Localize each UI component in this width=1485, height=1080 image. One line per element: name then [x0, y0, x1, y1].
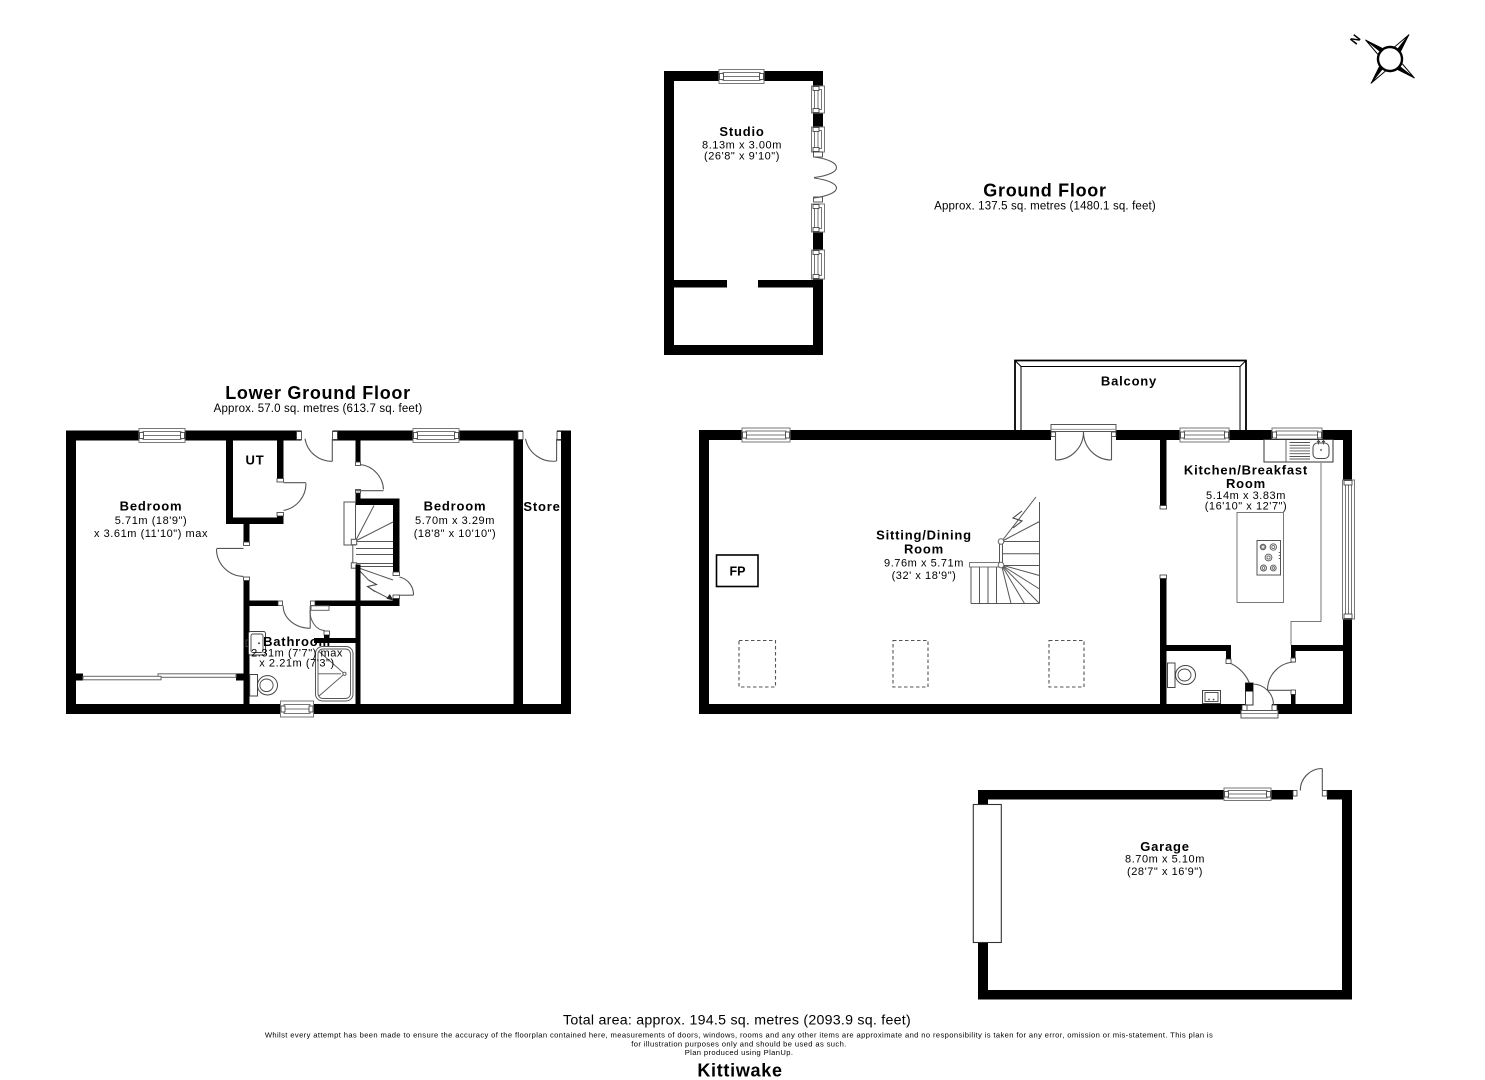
svg-text:(16'10" x 12'7"): (16'10" x 12'7") — [1205, 501, 1288, 513]
svg-text:Lower Ground Floor: Lower Ground Floor — [225, 383, 411, 403]
svg-text:Total area: approx. 194.5 sq.: Total area: approx. 194.5 sq. metres (20… — [563, 1013, 911, 1029]
svg-text:Sitting/Dining: Sitting/Dining — [876, 528, 972, 543]
svg-text:5.70m x 3.29m: 5.70m x 3.29m — [415, 515, 495, 527]
svg-text:Balcony: Balcony — [1101, 374, 1157, 389]
svg-text:UT: UT — [246, 453, 265, 468]
svg-text:Bedroom: Bedroom — [120, 499, 183, 514]
svg-text:Plan produced using PlanUp.: Plan produced using PlanUp. — [685, 1048, 794, 1057]
svg-text:Whilst every attempt has been: Whilst every attempt has been made to en… — [265, 1031, 1213, 1040]
svg-text:Approx. 137.5 sq. metres (1480: Approx. 137.5 sq. metres (1480.1 sq. fee… — [934, 201, 1156, 213]
svg-text:Bedroom: Bedroom — [424, 499, 487, 514]
svg-text:x 2.21m (7'3"): x 2.21m (7'3") — [259, 658, 334, 670]
svg-text:(32' x 18'9"): (32' x 18'9") — [892, 570, 957, 582]
svg-text:FP: FP — [730, 565, 746, 579]
svg-text:5.71m (18'9"): 5.71m (18'9") — [115, 515, 187, 527]
svg-text:Studio: Studio — [719, 124, 764, 139]
svg-text:Room: Room — [1226, 476, 1266, 491]
svg-text:Room: Room — [904, 542, 944, 557]
svg-text:Approx. 57.0 sq. metres (613.7: Approx. 57.0 sq. metres (613.7 sq. feet) — [214, 403, 423, 415]
svg-text:x 3.61m (11'10") max: x 3.61m (11'10") max — [94, 528, 208, 540]
svg-text:(18'8" x 10'10"): (18'8" x 10'10") — [414, 528, 497, 540]
svg-text:9.76m x 5.71m: 9.76m x 5.71m — [884, 558, 964, 570]
svg-text:(28'7" x 16'9"): (28'7" x 16'9") — [1127, 866, 1203, 878]
svg-text:Ground Floor: Ground Floor — [983, 181, 1106, 201]
svg-text:Kittiwake: Kittiwake — [697, 1061, 782, 1080]
svg-text:(26'8" x 9'10"): (26'8" x 9'10") — [704, 151, 780, 163]
svg-text:8.70m x 5.10m: 8.70m x 5.10m — [1125, 854, 1205, 866]
svg-text:Store: Store — [523, 499, 560, 514]
svg-text:Garage: Garage — [1140, 839, 1190, 854]
